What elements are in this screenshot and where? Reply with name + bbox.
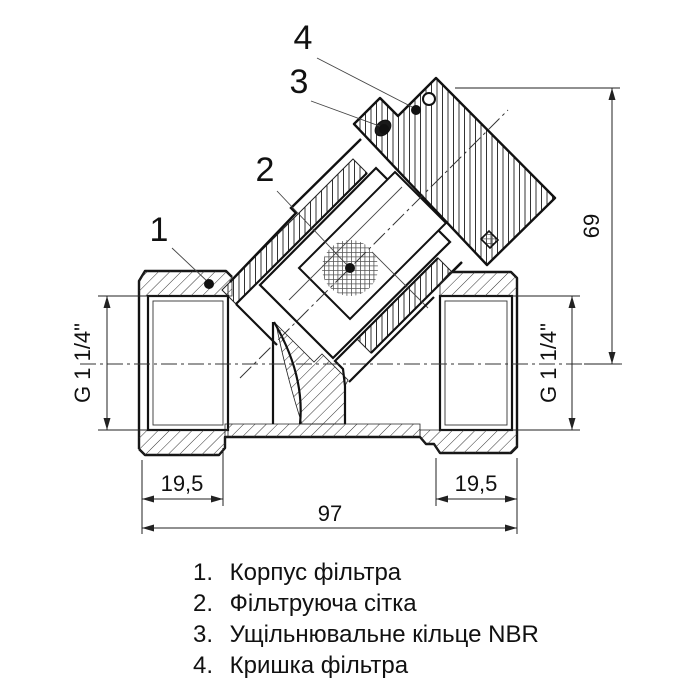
legend-item-number: 1. [193,557,223,588]
callout-4: 4 [294,19,313,57]
legend-item-number: 3. [193,619,223,650]
parts-legend: 1. Корпус фільтра 2. Фільтруюча сітка 3.… [193,557,539,681]
dim-port-left: 19,5 [161,471,204,496]
legend-item-label: Кришка фільтра [230,652,408,679]
dim-thread-right: G 1 1/4" [536,323,561,403]
legend-item-label: Ущільнювальне кільце NBR [230,621,539,648]
cap-hole [423,93,435,105]
legend-item-3: 3. Ущільнювальне кільце NBR [193,619,539,650]
dim-height-69: 69 [579,214,604,238]
callout-1: 1 [150,211,169,249]
legend-item-number: 2. [193,588,223,619]
legend-item-label: Корпус фільтра [230,559,401,586]
dim-thread-left: G 1 1/4" [70,323,95,403]
legend-item-2: 2. Фільтруюча сітка [193,588,539,619]
legend-item-number: 4. [193,650,223,681]
legend-item-4: 4. Кришка фільтра [193,650,539,681]
legend-item-1: 1. Корпус фільтра [193,557,539,588]
legend-item-label: Фільтруюча сітка [230,590,417,617]
callout-3: 3 [290,63,309,101]
callout-2: 2 [256,151,275,189]
dim-port-right: 19,5 [455,471,498,496]
callout-numbers: 1 2 3 4 [150,19,313,249]
technical-drawing-page: G 1 1/4" G 1 1/4" 69 97 19,5 19,5 1 2 3 … [0,0,700,700]
dim-total-97: 97 [318,501,342,526]
